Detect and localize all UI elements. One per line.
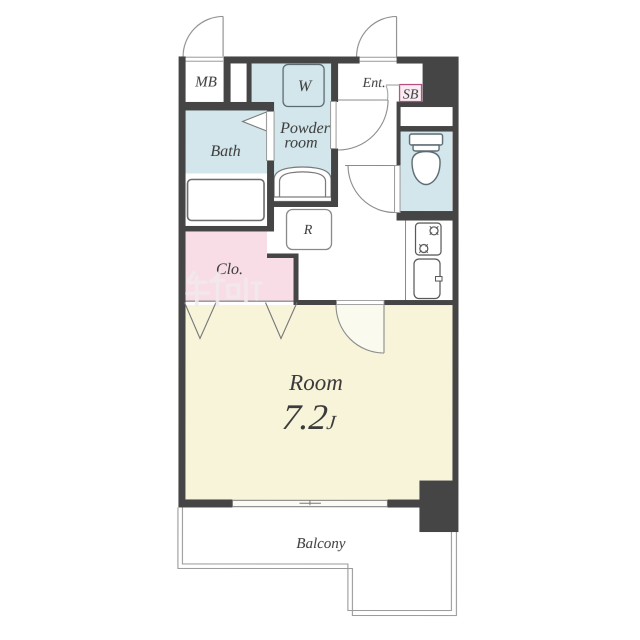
svg-text:Bath: Bath — [210, 143, 240, 160]
svg-text:R: R — [303, 223, 313, 238]
svg-text:Balcony: Balcony — [296, 536, 345, 552]
svg-text:room: room — [284, 134, 317, 151]
svg-text:Clo.: Clo. — [216, 261, 243, 278]
svg-text:SB: SB — [403, 88, 419, 103]
svg-text:Room: Room — [288, 370, 343, 395]
svg-text:Ent.: Ent. — [362, 76, 386, 91]
svg-text:W: W — [298, 78, 313, 95]
svg-text:MB: MB — [194, 74, 217, 90]
